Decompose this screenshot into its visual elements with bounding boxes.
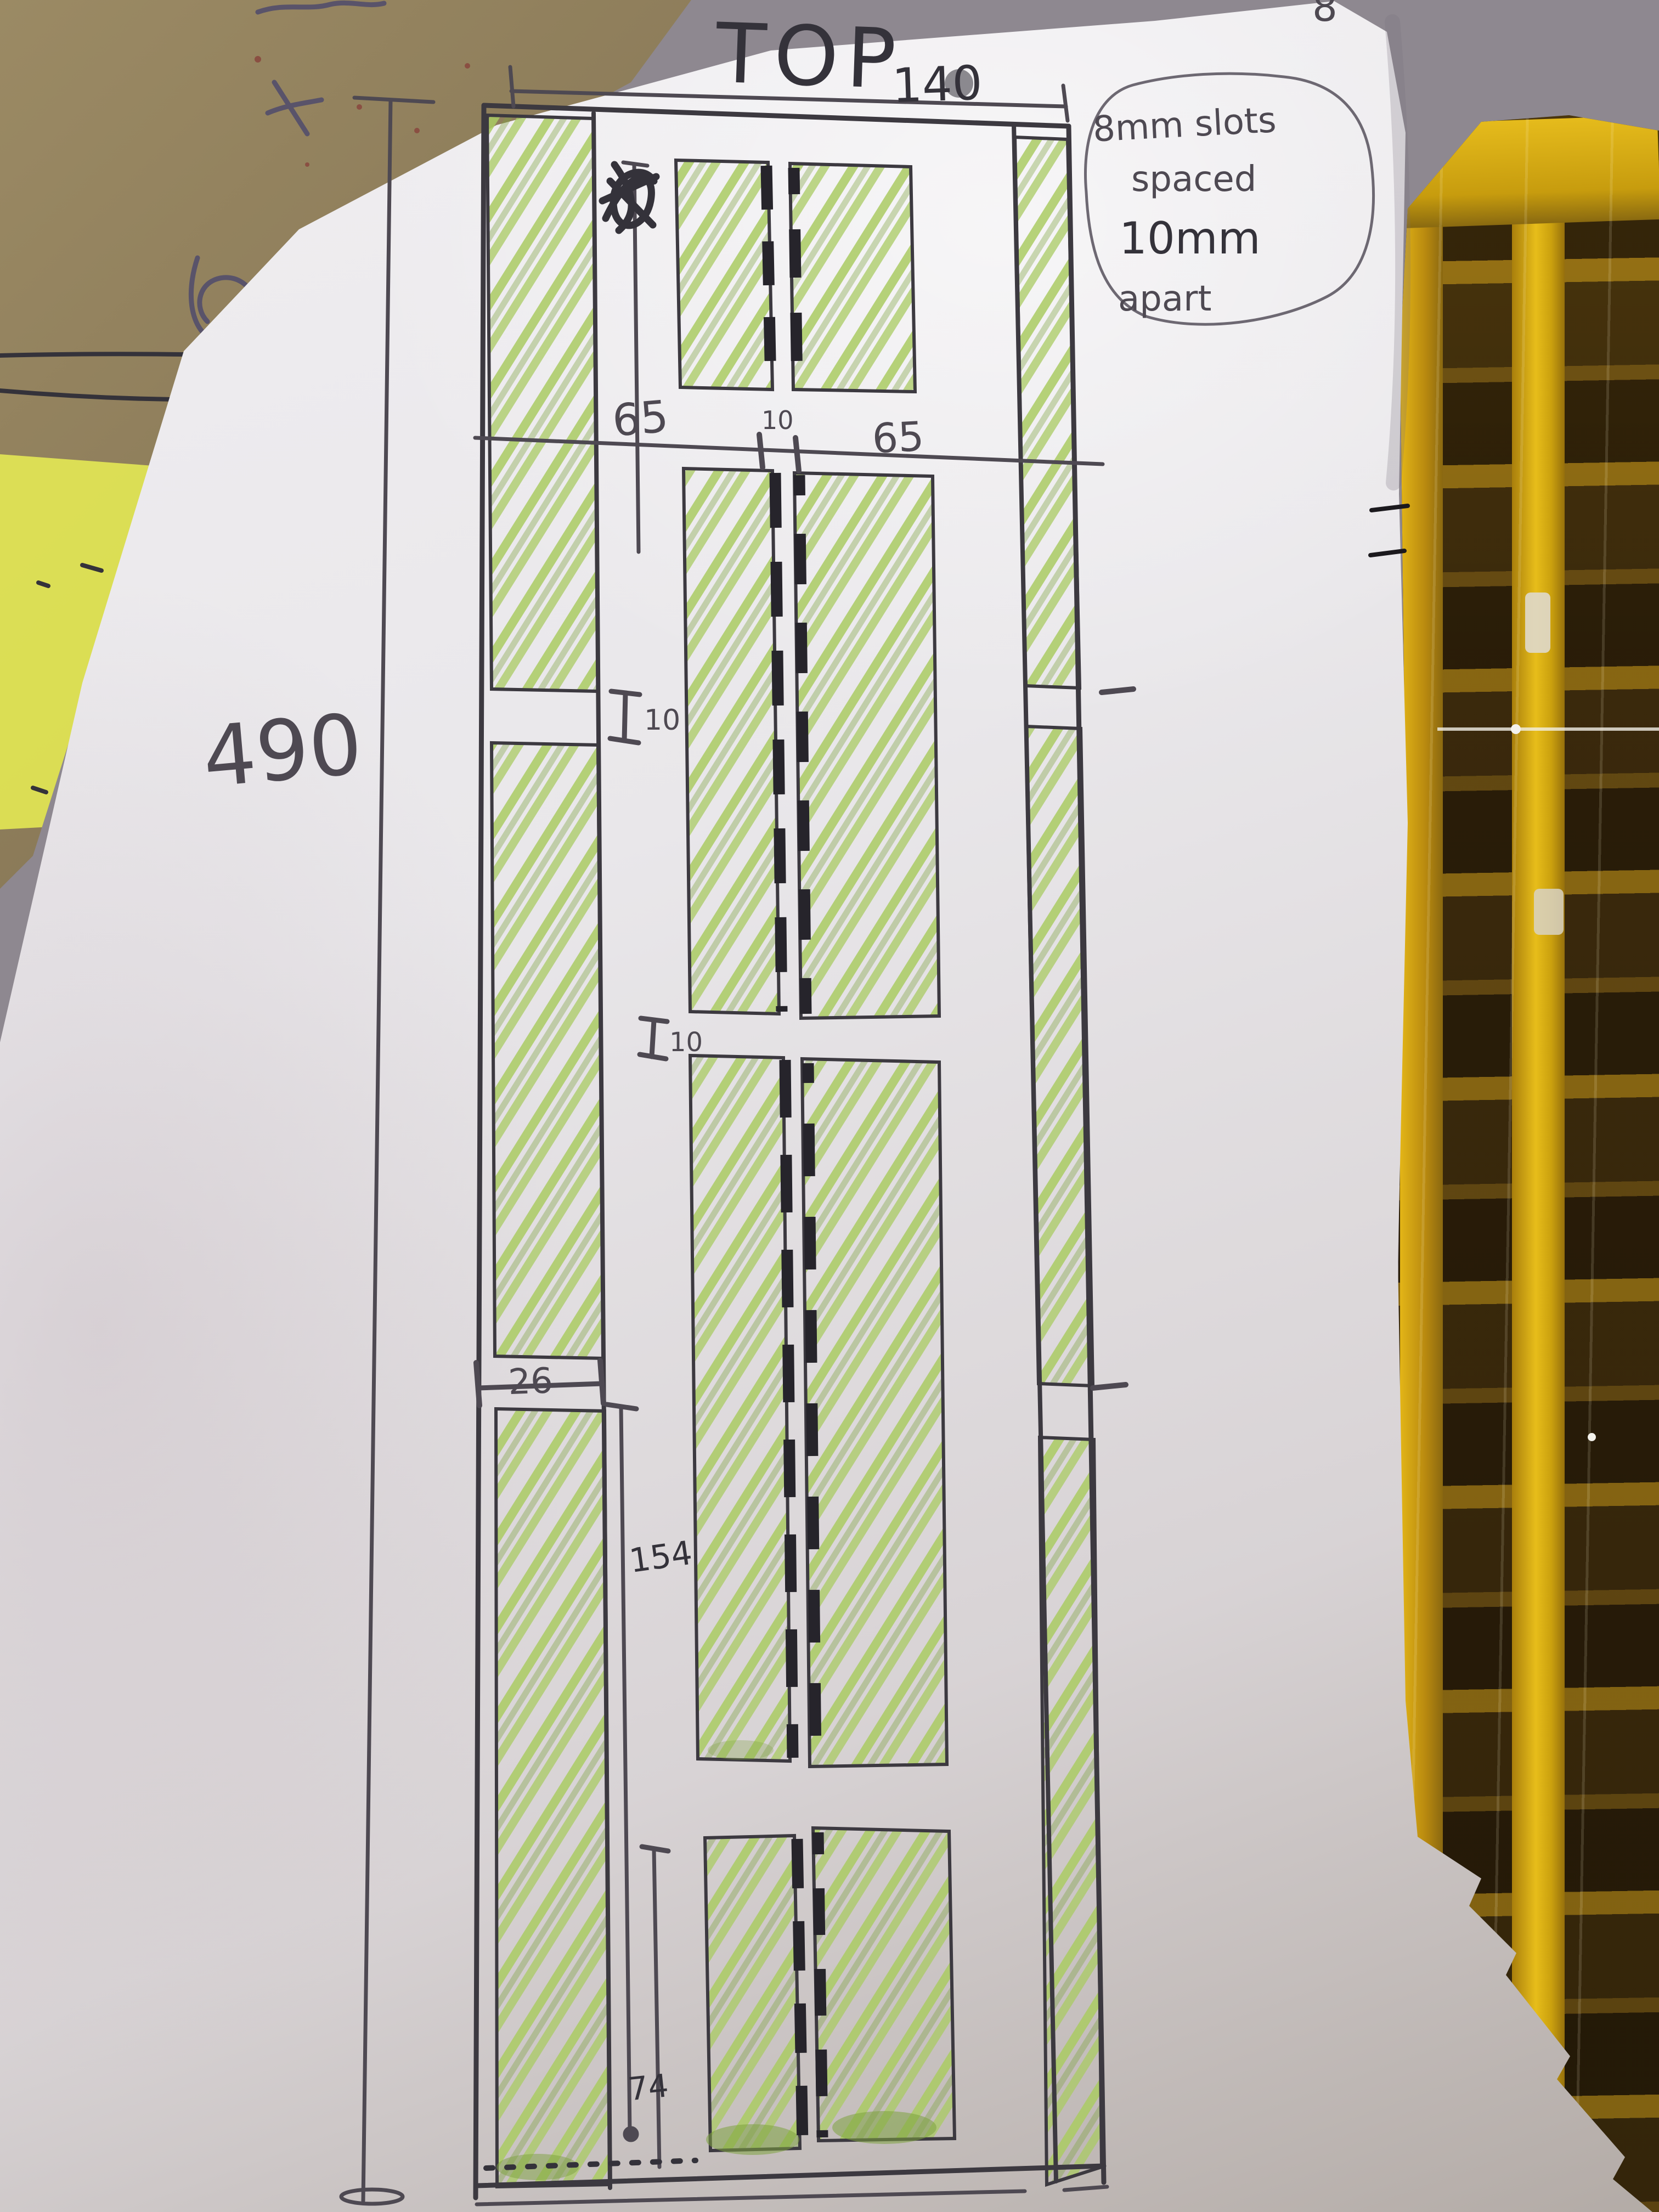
- center-panel: [790, 163, 915, 392]
- center-panel: [684, 469, 779, 1014]
- note-line-1: 8mm slots: [1092, 100, 1277, 150]
- dim-10-leftgap-label: 10: [644, 704, 680, 737]
- dim-74-label: 74: [626, 2067, 670, 2108]
- dim-65-right-label: 65: [871, 413, 926, 463]
- dim-26-label: 26: [507, 1361, 554, 1403]
- sketch-svg: TOP 140 490 65 10 65 10 10 26 154 74 8 8…: [0, 0, 1659, 2212]
- photo-scene: TOP 140 490 65 10 65 10 10 26 154 74 8 8…: [0, 0, 1659, 2212]
- center-panel: [813, 1828, 955, 2141]
- pin-wires: [1370, 506, 1408, 555]
- note-line-2: spaced: [1131, 159, 1256, 200]
- dim-154-label: 154: [627, 1534, 695, 1581]
- note-text: 8mm slots spaced 10mm apart: [1092, 100, 1277, 319]
- center-panel: [705, 1836, 800, 2151]
- center-panel: [690, 1056, 790, 1761]
- left-strip-panel: [496, 1409, 610, 2187]
- dim-65-left-label: 65: [610, 391, 670, 447]
- center-panel: [794, 473, 939, 1018]
- stray-8-mark: 8: [1312, 0, 1338, 30]
- filled-zero-blob: [945, 69, 973, 98]
- center-panel: [802, 1059, 947, 1767]
- scribbled-out-mark: [602, 165, 656, 230]
- dim-10-center-label: 10: [761, 405, 794, 435]
- dim-490-label: 490: [199, 696, 366, 806]
- note-line-4: apart: [1118, 279, 1211, 319]
- title-label: TOP: [714, 6, 905, 108]
- note-line-3: 10mm: [1119, 213, 1261, 264]
- left-strip-panel: [487, 115, 598, 691]
- center-panel: [676, 160, 772, 390]
- sheet-curl-shadow: [1392, 22, 1403, 483]
- dim-10-centergap-label: 10: [669, 1027, 703, 1058]
- left-strip-panel: [492, 743, 603, 1358]
